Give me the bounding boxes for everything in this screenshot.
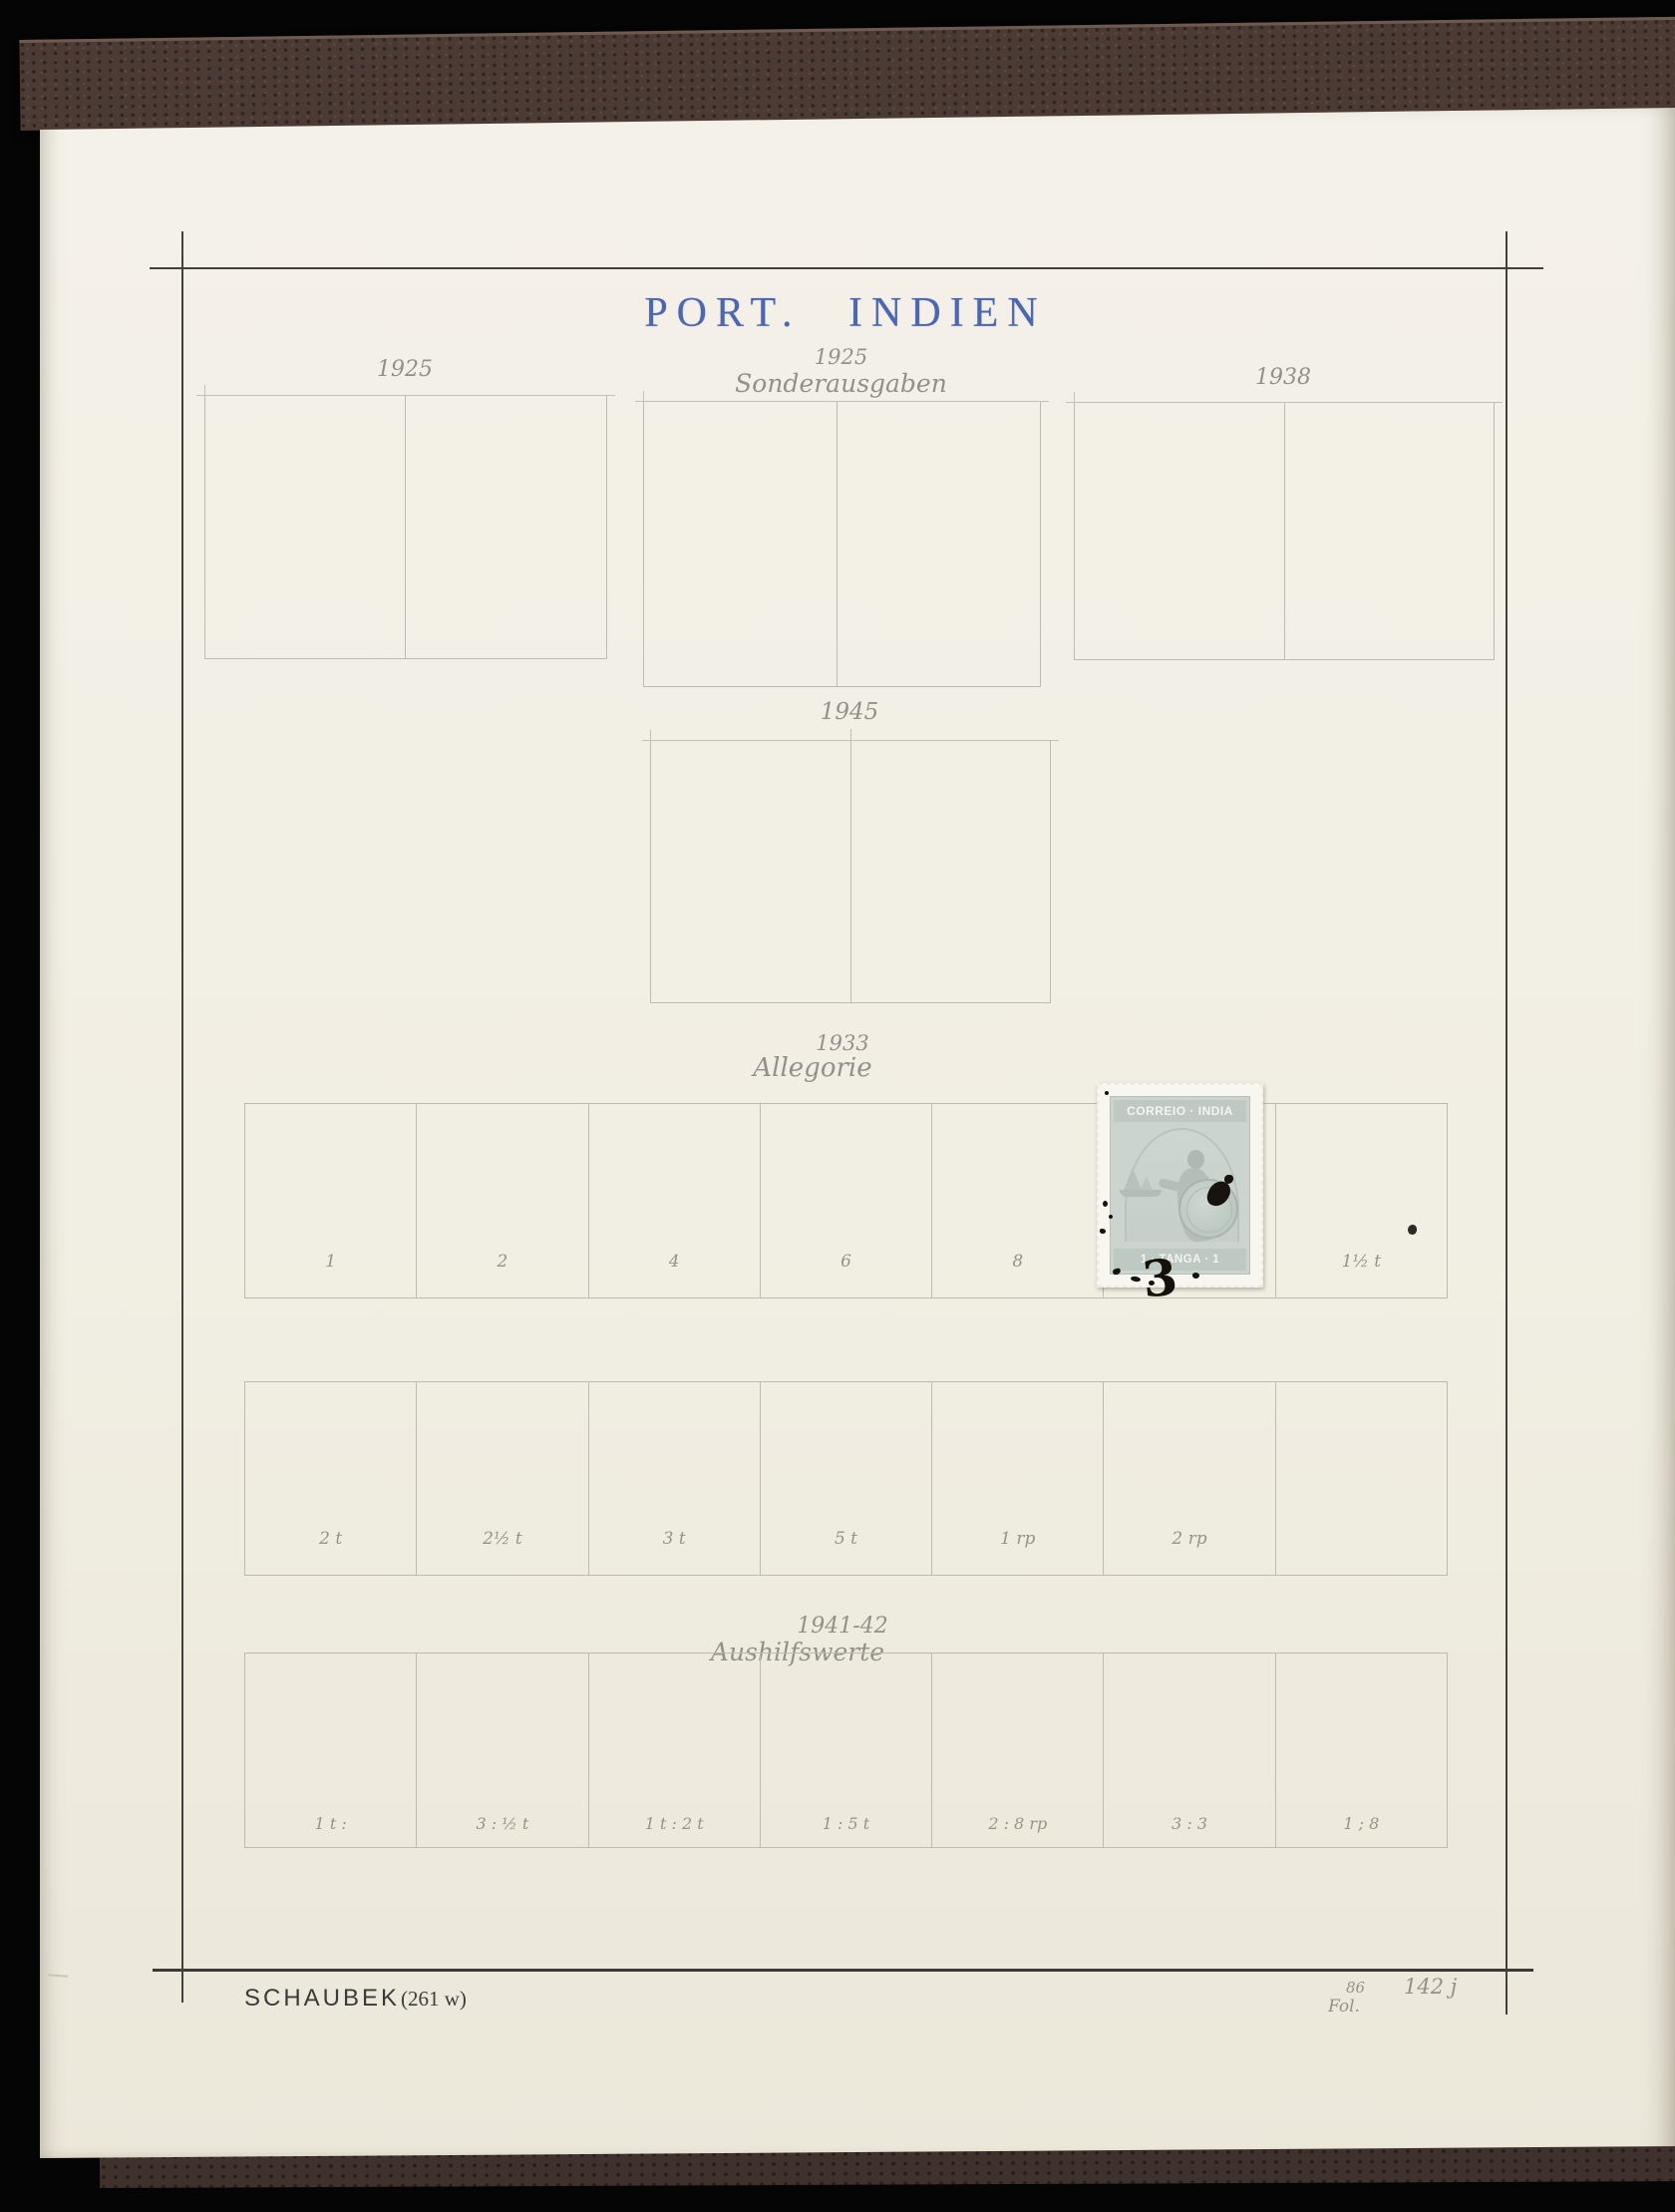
frame-right-rule	[1506, 231, 1507, 2015]
denomination-label: 1 t : 2 t	[589, 1814, 760, 1833]
stamp-country-inscription: CORREIO · INDIA	[1114, 1100, 1246, 1122]
group-year-label-1925: 1925	[204, 357, 605, 382]
stamp-cell: 1 t : 2 t	[588, 1654, 760, 1847]
stamp-cell: 1½ t	[1275, 1104, 1447, 1297]
stamp-cell: 2 t	[245, 1382, 416, 1575]
denomination-label: 2 : 8 rp	[932, 1814, 1103, 1833]
stamp-cell: 2	[416, 1104, 587, 1297]
page-title: PORT. INDIEN	[182, 289, 1508, 337]
ink-speck	[1103, 1201, 1108, 1207]
frame-divider	[405, 396, 406, 658]
stamp-frame-1938	[1074, 402, 1495, 660]
stamp-cell: 6	[760, 1104, 931, 1297]
publisher-imprint: SCHAUBEK	[244, 1985, 400, 2013]
group-year-label-1938: 1938	[1074, 365, 1493, 390]
stamp-cell: 4	[588, 1104, 760, 1297]
denomination-label: 1 : 5 t	[761, 1814, 931, 1833]
frame-divider	[1284, 403, 1285, 659]
pencil-page-number: 142 j	[1404, 1975, 1457, 1999]
frame-divider	[837, 402, 837, 686]
stamp-value-inscription: 1 · TANGA · 1	[1114, 1249, 1246, 1271]
ship-motif	[1120, 1190, 1162, 1197]
stamp-cell: 1	[245, 1104, 416, 1297]
denomination-label: 1	[245, 1252, 416, 1272]
stamp-cell: 1 rp	[931, 1382, 1103, 1575]
stamp-cell	[1275, 1382, 1447, 1575]
group-subtitle-sonderausgaben: Sonderausgaben	[643, 369, 1039, 398]
frame-tick	[850, 729, 851, 741]
group-year-label-1945: 1945	[650, 699, 1049, 725]
ink-speck	[1105, 1091, 1109, 1095]
stamp-frame-1945	[650, 740, 1051, 1003]
stamp-row-1941: 1 t : 3 : ½ t 1 t : 2 t 1 : 5 t 2 : 8 rp…	[244, 1653, 1448, 1848]
denomination-label: 1 t :	[245, 1814, 416, 1833]
denomination-label: 2	[417, 1252, 587, 1272]
pencil-mark	[48, 1974, 68, 1977]
stamp-cell: 1 : 5 t	[760, 1654, 931, 1847]
denomination-label: 3 : ½ t	[417, 1814, 587, 1833]
denomination-label: 2 t	[245, 1529, 416, 1549]
stamp-frame-1925-sonder	[643, 401, 1041, 687]
stamp-frame-1925	[204, 395, 607, 659]
denomination-label: 1 rp	[932, 1529, 1103, 1549]
stamp-cell: 3 : ½ t	[416, 1654, 587, 1847]
frame-left-rule	[181, 231, 183, 2003]
denomination-label: 1½ t	[1276, 1252, 1447, 1272]
ink-speck	[1100, 1229, 1106, 1234]
perforation-edge	[1097, 1281, 1263, 1288]
frame-bottom-rule	[153, 1969, 1533, 1972]
ink-numeral: 3	[1140, 1252, 1179, 1304]
stamp-cell: 1 ; 8	[1275, 1654, 1447, 1847]
group-year-label-1925s: 1925	[643, 345, 1039, 369]
denomination-label: 3 t	[589, 1529, 760, 1549]
stamp-cell: 3 : 3	[1103, 1654, 1274, 1847]
denomination-label: 1 ; 8	[1276, 1814, 1447, 1833]
denomination-label: 3 : 3	[1104, 1814, 1274, 1833]
denomination-label: 6	[761, 1252, 931, 1272]
stamp-row-1933-high-values: 2 t 2½ t 3 t 5 t 1 rp 2 rp	[244, 1381, 1448, 1576]
ink-speck	[1109, 1215, 1113, 1219]
photo-of-album-page: PORT. INDIEN 1925 1925 Sonderausgaben 19…	[0, 0, 1675, 2212]
stamp-row-1933: 1 2 4 6 8 1½ t	[244, 1103, 1448, 1298]
denomination-label: 2½ t	[417, 1529, 587, 1549]
group-subtitle-allegorie: Allegorie	[613, 1053, 1012, 1083]
album-page: PORT. INDIEN 1925 1925 Sonderausgaben 19…	[40, 108, 1675, 2164]
ink-speck	[1192, 1273, 1199, 1279]
perforation-edge	[1097, 1083, 1104, 1288]
stamp-cell: 3 t	[588, 1382, 760, 1575]
pencil-note-small-bottom: Fol.	[1328, 1997, 1360, 2017]
stamp-cell: 2 : 8 rp	[931, 1654, 1103, 1847]
denomination-label: 2 rp	[1104, 1529, 1274, 1549]
denomination-label: 8	[932, 1252, 1103, 1272]
frame-top-rule	[150, 267, 1543, 269]
group-year-label-1941: 1941-42	[643, 1614, 1042, 1639]
ink-speck	[1408, 1225, 1417, 1235]
ink-speck	[1149, 1281, 1155, 1286]
stamp-cell: 2½ t	[416, 1382, 587, 1575]
stamp-cell: 8	[931, 1104, 1103, 1297]
stamp-cell: 1 t :	[245, 1654, 416, 1847]
perforation-edge	[1256, 1083, 1263, 1288]
denomination-label: 4	[589, 1252, 760, 1272]
stamp-cell: 5 t	[760, 1382, 931, 1575]
stamp-1-tanga: CORREIO · INDIA 1 · TANGA · 1 3	[1097, 1083, 1263, 1288]
frame-divider	[850, 741, 851, 1002]
pencil-note-small-top: 86	[1346, 1979, 1365, 1997]
plate-number: (261 w)	[401, 1987, 467, 2012]
denomination-label: 5 t	[761, 1529, 931, 1549]
group-year-label-1933: 1933	[643, 1031, 1042, 1055]
stamp-cell: 2 rp	[1103, 1382, 1274, 1575]
perforation-edge	[1097, 1083, 1263, 1090]
